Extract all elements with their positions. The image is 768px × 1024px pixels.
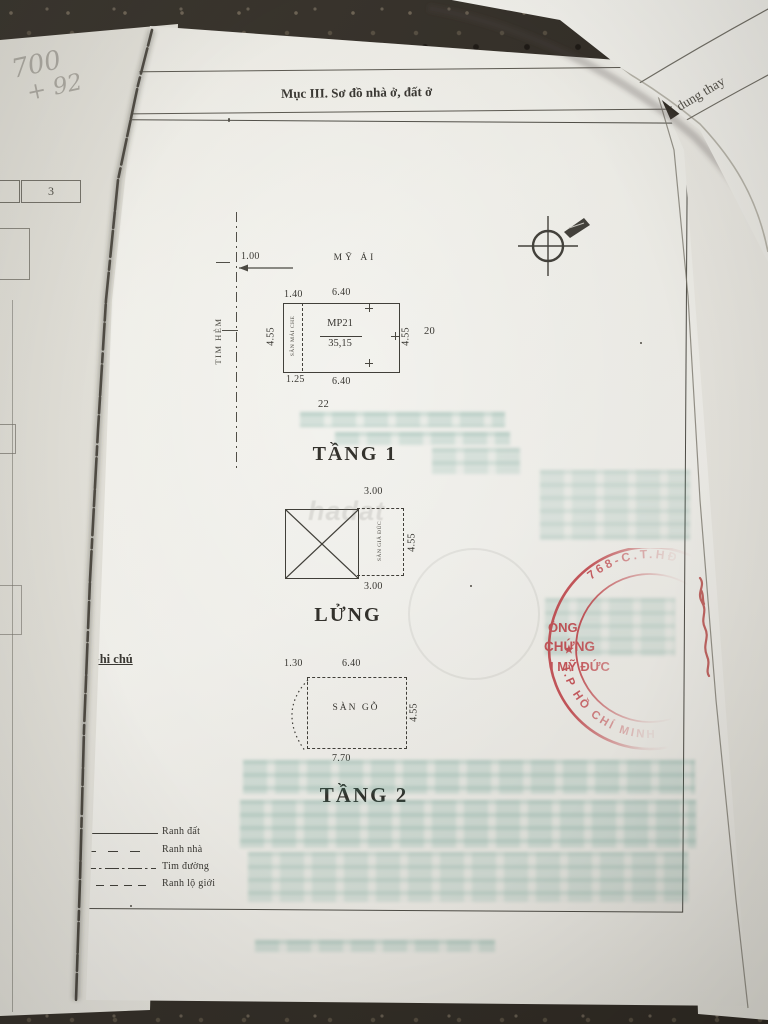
- floor1-title: TẦNG 1: [300, 443, 410, 466]
- ink-bleed-through: [243, 760, 695, 794]
- legend-label-ranh-dat: Ranh đất: [162, 826, 200, 837]
- under-page-rule: [12, 300, 13, 1012]
- dim-mz-right: 4.55: [407, 526, 418, 560]
- dust-speck: [130, 905, 132, 907]
- offset-dimension-arrow: [237, 262, 295, 274]
- ink-bleed-through: [248, 852, 688, 902]
- opening-mark: [391, 332, 399, 340]
- legend-label-ranh-lo-gioi: Ranh lộ giới: [162, 878, 215, 889]
- dust-speck: [470, 585, 472, 587]
- table-cell-partial: [0, 424, 16, 454]
- legend-line-tim-duong: [82, 868, 156, 869]
- dim-f1-right: 4.55: [401, 320, 412, 354]
- table-cell-partial: [0, 585, 22, 635]
- neighbor-bottom: 22: [318, 399, 329, 410]
- dim-f1-left: 4.55: [266, 320, 277, 354]
- parcel-fraction-rule: [320, 336, 362, 337]
- notary-stamp: 768-C.T.HĐ T.P HỒ CHÍ MINH ÒNG CHỨNG Ị M…: [500, 548, 740, 758]
- ink-bleed-through: [255, 940, 495, 952]
- svg-text:T.P HỒ CHÍ MINH: T.P HỒ CHÍ MINH: [559, 664, 658, 741]
- ink-bleed-through: [335, 432, 510, 445]
- floor2-floor-note: SÀN GỖ: [315, 703, 397, 713]
- table-cell-partial: [0, 228, 30, 280]
- mezzanine-title: LỬNG: [293, 604, 403, 627]
- ink-bleed-through: [432, 448, 520, 474]
- legend-label-ranh-nha: Ranh nhà: [162, 844, 202, 855]
- ink-bleed-through: [240, 800, 696, 848]
- dim-f2-top: 6.40: [342, 658, 361, 669]
- table-cell-number: 3: [21, 180, 81, 203]
- ink-bleed-through: [540, 470, 690, 540]
- parcel-code: MP21: [314, 318, 366, 329]
- dim-mz-bottom: 3.00: [364, 581, 383, 592]
- dim-f2-right: 4.55: [409, 696, 420, 730]
- floor2-outline: [307, 677, 407, 749]
- floor2-irregular-edge: [278, 670, 312, 758]
- pencil-handwriting: 700 + 92: [9, 44, 84, 108]
- tick-mark: [222, 330, 238, 331]
- section-title: Mục III. Sơ đồ nhà ở, đất ở: [281, 84, 432, 102]
- header-rule-bottom: [90, 108, 706, 114]
- dim-f1-topleft: 1.40: [284, 289, 303, 300]
- parcel-area: 35,15: [314, 338, 366, 349]
- dim-offset: 1.00: [241, 251, 260, 262]
- opening-mark: [365, 359, 373, 367]
- street-name: MỸ ẢI: [312, 253, 398, 263]
- svg-text:768-C.T.HĐ: 768-C.T.HĐ: [584, 548, 681, 582]
- legend-line-ranh-nha: [86, 851, 148, 852]
- stamp-line3: Ị MỸ ĐỨC: [550, 659, 611, 674]
- stamp-arc-bottom-text: T.P HỒ CHÍ MINH: [559, 664, 658, 741]
- header-rule-top: [96, 66, 702, 72]
- covered-yard-label: SÂN MÁI CHE: [290, 306, 296, 366]
- legend-line-ranh-dat: [84, 833, 158, 834]
- neighbor-right: 20: [424, 326, 435, 337]
- table-cell-partial: [0, 180, 20, 203]
- alley-axis-label: TIM HẺM: [213, 309, 223, 373]
- survey-north-icon: [512, 206, 604, 278]
- stamp-line1: ÒNG: [548, 620, 578, 635]
- stamp-arc-top-text: 768-C.T.HĐ: [584, 548, 681, 582]
- dust-speck: [640, 342, 642, 344]
- dim-f1-top: 6.40: [332, 287, 351, 298]
- dim-f1-bottom: 6.40: [332, 376, 351, 387]
- photo-of-floor-plan-document: 700 + 92 3 Mục III. Sơ đồ nhà ở, đất ở T…: [0, 0, 768, 1024]
- dust-speck: [228, 118, 230, 122]
- dim-f1-bottomleft: 1.25: [286, 374, 305, 385]
- tick-mark: [216, 262, 230, 263]
- opening-mark: [365, 304, 373, 312]
- alley-centerline: [236, 212, 237, 470]
- stamp-star-icon: ★: [564, 644, 574, 656]
- dim-f2-topleft: 1.30: [284, 658, 303, 669]
- ink-bleed-through: [300, 412, 505, 427]
- legend-line-ranh-lo-gioi: [82, 885, 152, 886]
- site-watermark: hadat: [308, 496, 385, 527]
- legend-label-tim-duong: Tim đường: [162, 861, 209, 872]
